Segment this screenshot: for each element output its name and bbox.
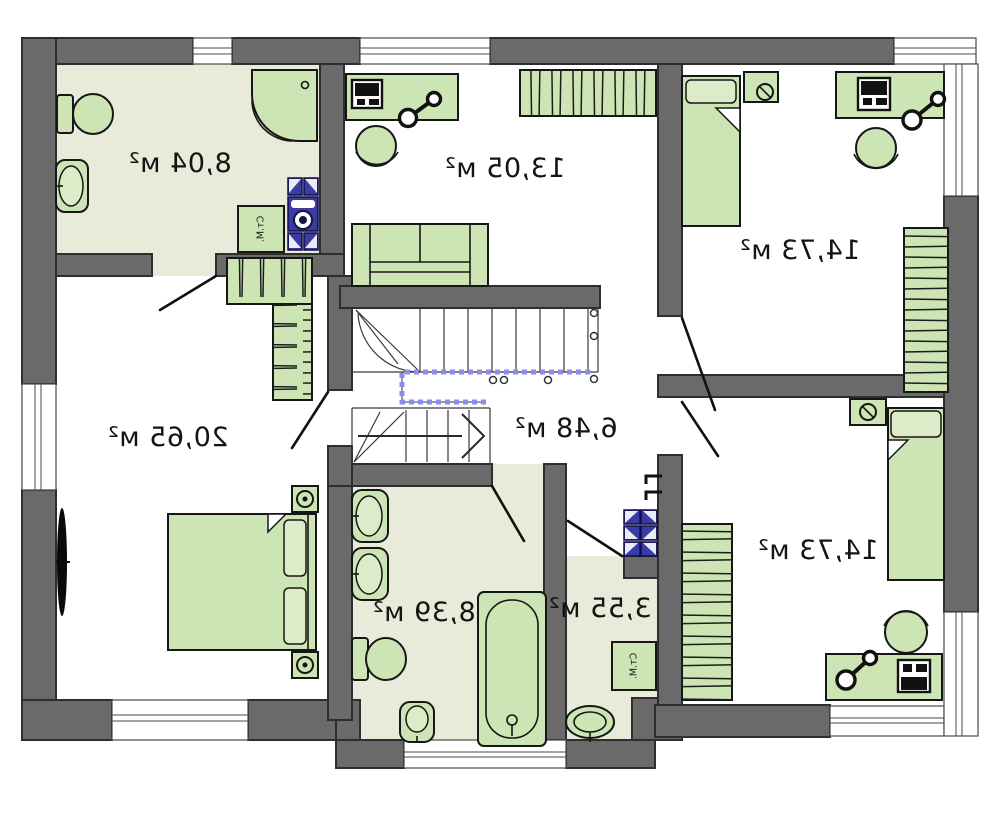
desk	[826, 652, 942, 701]
wall	[232, 38, 360, 64]
window	[112, 700, 248, 740]
bathtub	[478, 592, 546, 746]
bidet	[400, 702, 434, 742]
bed-single	[888, 408, 944, 580]
door-leaf	[568, 521, 622, 556]
wall	[655, 705, 830, 737]
wall	[352, 464, 492, 486]
nightstand	[292, 652, 318, 678]
wall	[624, 556, 658, 578]
window	[193, 38, 232, 64]
pc-icon	[898, 660, 930, 692]
toilet	[57, 94, 113, 134]
washer-dryer-stack	[624, 510, 657, 556]
wall	[658, 375, 944, 397]
wall	[944, 196, 978, 612]
bedroom-top-right-furniture	[682, 72, 948, 392]
wall	[22, 700, 112, 740]
area-label: 8,04 м²	[128, 148, 231, 179]
wall	[328, 486, 352, 720]
wall	[22, 38, 56, 384]
bed-single	[682, 76, 740, 226]
pc-icon	[858, 78, 890, 110]
wardrobe	[520, 70, 656, 116]
nightstand	[744, 72, 778, 102]
nightstand	[292, 486, 318, 512]
wall	[22, 490, 56, 712]
wardrobe	[904, 228, 948, 392]
washing-machine-cabinet: Ст.М.	[238, 206, 284, 252]
washing-machine-cabinet: Ст.М.	[612, 642, 656, 690]
wall	[340, 286, 600, 308]
desk	[346, 74, 458, 127]
stairs-direction-arrow	[358, 414, 484, 458]
wall	[566, 740, 655, 768]
area-label: 13,05 м²	[444, 153, 565, 184]
wall	[490, 38, 894, 64]
washing-machine-label: Ст.М.	[629, 653, 640, 679]
stool	[356, 126, 398, 166]
wall	[320, 64, 344, 258]
bedroom-left-furniture	[56, 258, 318, 678]
hallway-items	[624, 476, 662, 556]
washing-machine-label: Ст.М.	[256, 216, 267, 242]
wardrobe	[682, 524, 732, 700]
bed-double	[168, 514, 316, 650]
wall	[56, 254, 152, 276]
door-leaf	[682, 402, 718, 456]
sink	[56, 160, 88, 212]
floor-plan-canvas: Ст.М.	[0, 0, 1000, 822]
tv-on-wall	[56, 508, 70, 616]
area-label: 3,55 м²	[548, 593, 651, 624]
stool	[884, 611, 928, 653]
stool	[854, 128, 898, 168]
area-label: 6,48 м²	[514, 413, 617, 444]
nightstand	[850, 399, 886, 425]
wardrobe	[227, 258, 312, 400]
area-label: 8,39 м²	[372, 597, 475, 628]
sofa	[352, 224, 488, 286]
area-label: 20,65 м²	[107, 422, 228, 453]
wall	[328, 446, 352, 486]
area-label: 14,73 м²	[739, 235, 860, 266]
toilet	[352, 638, 406, 680]
area-label: 14,73 м²	[757, 535, 878, 566]
desk	[836, 72, 945, 129]
wall	[336, 740, 404, 768]
sink	[352, 490, 388, 542]
window	[360, 38, 490, 64]
door-leaf	[160, 276, 216, 310]
floor-plan: Ст.М.	[0, 0, 1000, 822]
sink	[352, 548, 388, 600]
stairs-railing	[402, 310, 598, 403]
pc-icon	[352, 80, 382, 108]
window	[22, 384, 56, 490]
wall	[658, 64, 682, 316]
